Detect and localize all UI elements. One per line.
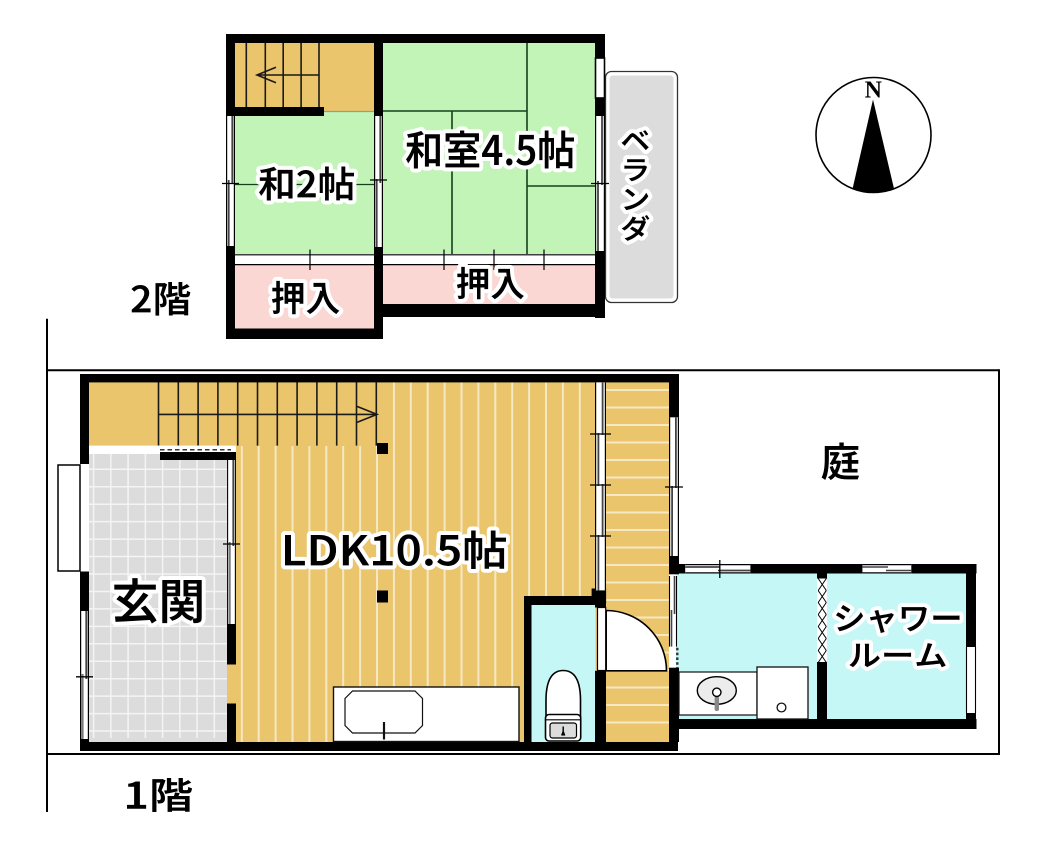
svg-text:N: N [865, 78, 883, 104]
